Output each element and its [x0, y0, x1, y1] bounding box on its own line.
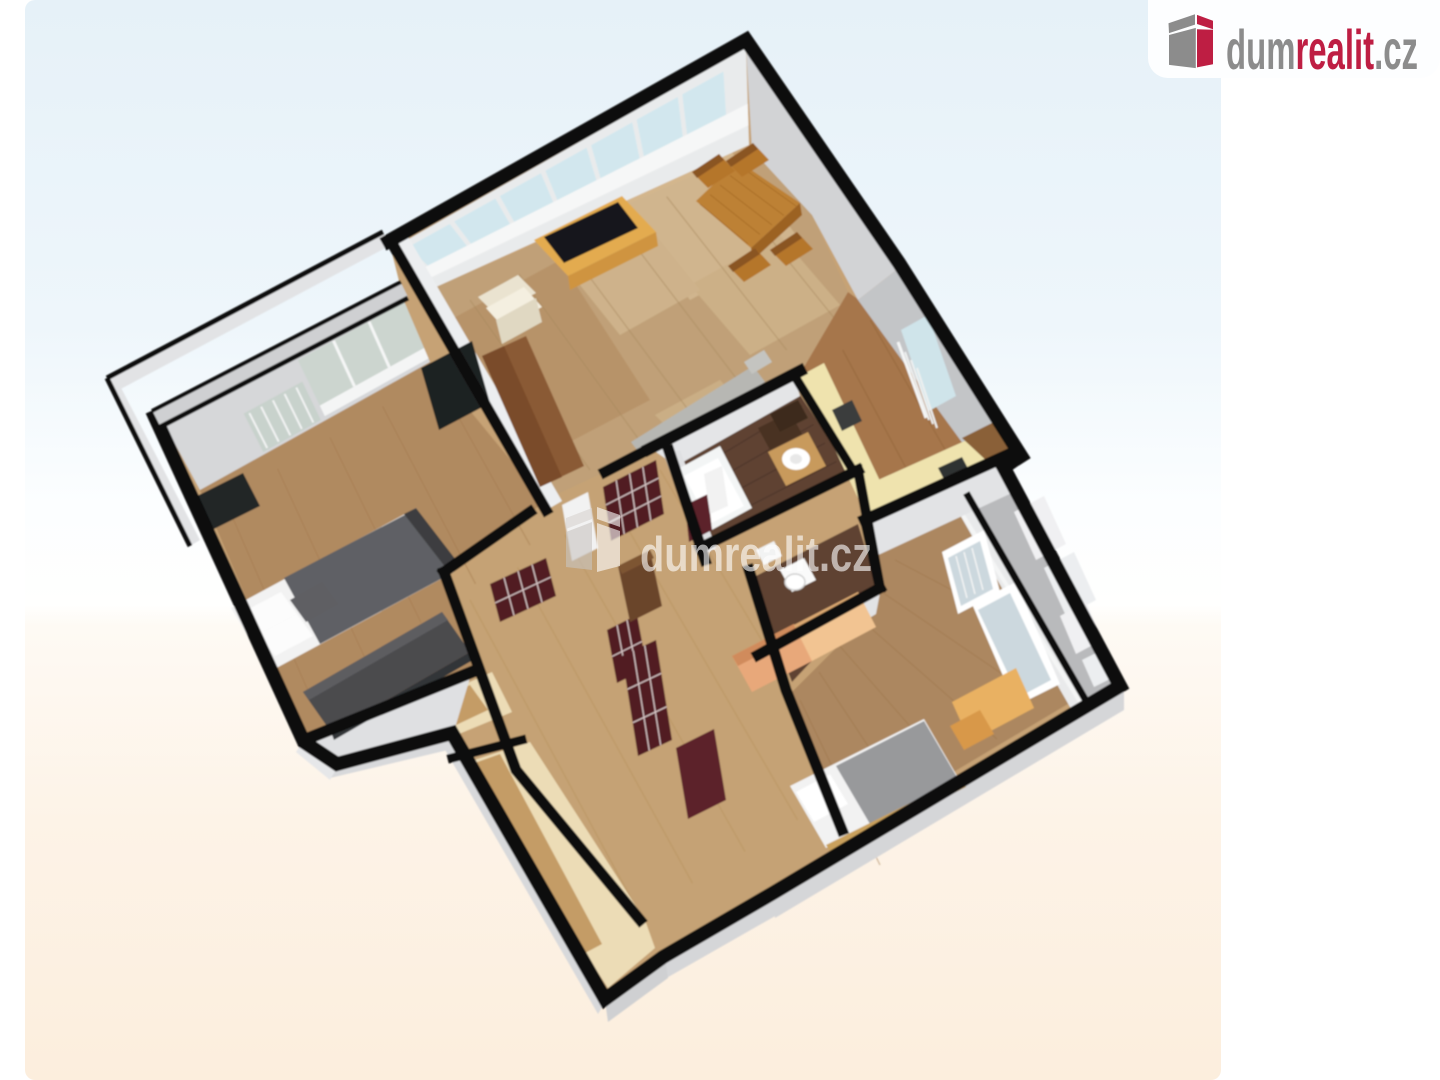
- svg-text:dumrealit.cz: dumrealit.cz: [1226, 18, 1418, 81]
- svg-text:dumrealit.cz: dumrealit.cz: [640, 528, 872, 582]
